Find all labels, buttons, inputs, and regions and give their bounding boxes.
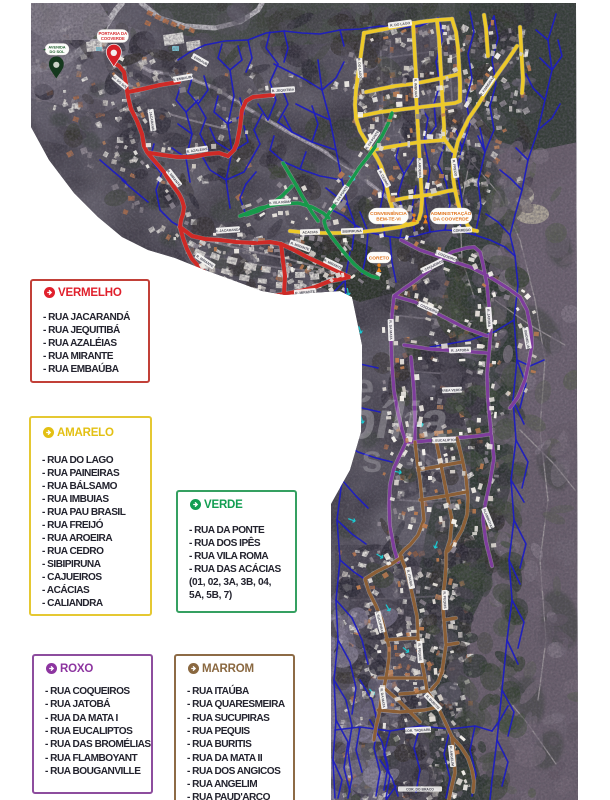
svg-text:R. IMBUIAS: R. IMBUIAS: [413, 79, 418, 99]
svg-text:SIBIPIRUNA: SIBIPIRUNA: [342, 229, 362, 234]
svg-text:R. MIRANTE: R. MIRANTE: [295, 289, 316, 295]
svg-text:COR. DO BRACO: COR. DO BRACO: [406, 787, 434, 791]
svg-text:R. DA MATA: R. DA MATA: [388, 320, 393, 340]
svg-text:BEM-TE-VI: BEM-TE-VI: [376, 217, 401, 223]
svg-text:R. AROEIRA: R. AROEIRA: [417, 158, 422, 179]
svg-text:COOVERDE: COOVERDE: [101, 36, 125, 41]
svg-text:ACACIAS: ACACIAS: [302, 230, 318, 235]
svg-text:obília: obília: [312, 392, 448, 450]
svg-text:R. PEQUIS: R. PEQUIS: [442, 591, 447, 609]
svg-text:S I: S I: [362, 446, 441, 479]
svg-text:ADMINISTRAÇÃO: ADMINISTRAÇÃO: [431, 210, 472, 217]
svg-text:CORETO: CORETO: [369, 255, 390, 261]
svg-text:R. JATOBA: R. JATOBA: [451, 348, 470, 353]
svg-text:DO SOL: DO SOL: [50, 49, 66, 54]
svg-text:DA COOVERDE: DA COOVERDE: [433, 217, 469, 223]
